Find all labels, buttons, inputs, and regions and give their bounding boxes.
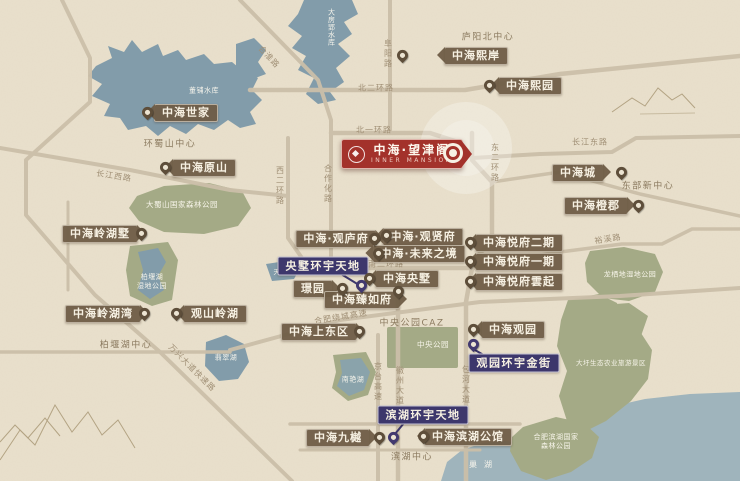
- poi-label[interactable]: 中海·观贤府: [382, 228, 463, 246]
- pin-shape: [168, 306, 184, 322]
- location-map: 中海世家中海原山中海熙岸中海熙园中海城中海橙郡中海悦府二期中海悦府一期中海悦府雲…: [0, 0, 740, 481]
- poi-label[interactable]: 中海九樾: [306, 429, 370, 447]
- road-label: 徽州大道: [395, 366, 406, 406]
- map-pin-icon[interactable]: [615, 166, 627, 181]
- pin-shape: [630, 198, 646, 214]
- map-pin-icon[interactable]: [392, 285, 404, 300]
- map-pin-icon[interactable]: [464, 275, 476, 290]
- poi-label[interactable]: 央墅环宇天地: [278, 257, 369, 276]
- district-label: 滨湖中心: [391, 450, 433, 463]
- map-pin-icon[interactable]: [159, 161, 171, 176]
- pin-shape: [385, 430, 401, 446]
- map-pin-icon[interactable]: [355, 279, 367, 294]
- pin-shape: [136, 306, 152, 322]
- pin-shape: [465, 337, 481, 353]
- pin-shape: [394, 48, 410, 64]
- pin-shape: [462, 235, 478, 251]
- poi-label[interactable]: 中海悦府二期: [475, 234, 563, 252]
- map-pin-icon[interactable]: [141, 106, 153, 121]
- map-pin-icon[interactable]: [336, 282, 348, 297]
- area-label: 董铺水库: [189, 86, 219, 95]
- area-label: 大蜀山国家森林公园: [146, 200, 218, 210]
- road-label: 西二环路: [275, 166, 286, 206]
- pin-shape: [481, 78, 497, 94]
- pin-shape: [351, 324, 367, 340]
- area-label: 翡翠湖: [215, 353, 238, 362]
- map-pin-icon[interactable]: [464, 236, 476, 251]
- pin-shape: [415, 429, 431, 445]
- poi-label[interactable]: 中海城: [552, 164, 604, 182]
- road-label: 阜阳路: [383, 39, 394, 69]
- poi-label[interactable]: 中海岭湖湾: [65, 305, 141, 323]
- poi-label[interactable]: 中海悦府雲起: [475, 273, 563, 291]
- pin-shape: [613, 165, 629, 181]
- brand-rosette-icon: [348, 146, 365, 163]
- map-pin-icon[interactable]: [372, 247, 384, 262]
- map-pin-icon[interactable]: [632, 199, 644, 214]
- main-project-subtitle: INNER MANSION: [371, 158, 453, 164]
- district-label: 柏堰湖中心: [100, 338, 153, 351]
- poi-label[interactable]: 中海观园: [481, 321, 545, 339]
- poi-label[interactable]: 中海熙园: [498, 77, 562, 95]
- poi-label[interactable]: 中海上东区: [281, 323, 357, 341]
- district-label: 东部新中心: [622, 179, 675, 192]
- main-project-target-icon[interactable]: [443, 143, 463, 163]
- map-pin-icon[interactable]: [467, 323, 479, 338]
- poi-label[interactable]: 中海滨湖公馆: [424, 428, 512, 446]
- map-pin-icon[interactable]: [417, 430, 429, 445]
- road-label: 长江东路: [572, 137, 608, 148]
- pin-shape: [334, 281, 350, 297]
- area-label: 大圩生态农业旅游景区: [576, 359, 646, 367]
- pin-shape: [139, 105, 155, 121]
- map-pin-icon[interactable]: [464, 255, 476, 270]
- district-label: 中央公园CAZ: [379, 316, 444, 329]
- poi-label[interactable]: 滨湖环宇天地: [378, 406, 469, 425]
- map-pin-icon[interactable]: [135, 227, 147, 242]
- area-label: 巢湖: [469, 460, 499, 470]
- pin-shape: [157, 160, 173, 176]
- map-pin-icon[interactable]: [483, 79, 495, 94]
- poi-label[interactable]: 观园环宇金街: [469, 354, 560, 373]
- pin-shape: [133, 226, 149, 242]
- poi-label[interactable]: 中海·未来之境: [372, 245, 465, 263]
- main-project-name: 中海·望津阁: [374, 144, 451, 156]
- map-pin-icon[interactable]: [138, 307, 150, 322]
- poi-label[interactable]: 中海岭湖墅: [62, 225, 138, 243]
- road-label: 合作化路: [323, 164, 334, 204]
- district-label: 环蜀山中心: [144, 137, 197, 150]
- poi-label[interactable]: 中海·观庐府: [295, 230, 376, 248]
- area-label: 龙栖地湿地公园: [604, 270, 657, 279]
- map-pin-icon[interactable]: [396, 49, 408, 64]
- area-label: 中央公园: [417, 340, 449, 350]
- map-pin-icon[interactable]: [387, 431, 399, 446]
- pin-shape: [370, 246, 386, 262]
- poi-label[interactable]: 中海悦府一期: [475, 253, 563, 271]
- map-pin-icon[interactable]: [170, 307, 182, 322]
- poi-label[interactable]: 中海原山: [172, 159, 236, 177]
- map-pin-icon[interactable]: [353, 325, 365, 340]
- map-pin-icon[interactable]: [467, 338, 479, 353]
- poi-label[interactable]: 中海世家: [154, 104, 218, 122]
- district-label: 庐阳北中心: [462, 30, 515, 43]
- pin-shape: [371, 430, 387, 446]
- area-label: 柏堰湖 湿地公园: [137, 273, 167, 291]
- road-label: 北二环路: [358, 83, 394, 94]
- road-label: 东二环路: [490, 143, 501, 183]
- pin-shape: [390, 284, 406, 300]
- poi-label[interactable]: 中海熙岸: [444, 47, 508, 65]
- pin-shape: [462, 254, 478, 270]
- pin-shape: [465, 322, 481, 338]
- road-label: 京台高速: [373, 362, 384, 402]
- map-pin-icon[interactable]: [373, 431, 385, 446]
- pin-shape: [378, 228, 394, 244]
- map-pin-icon[interactable]: [380, 229, 392, 244]
- area-label: 南艳湖: [342, 375, 365, 384]
- area-label: 大房郢水库: [326, 8, 335, 46]
- road-label: 北一环路: [356, 125, 392, 136]
- pin-shape: [353, 278, 369, 294]
- area-label: 合肥滨湖国家 森林公园: [534, 433, 579, 451]
- map-pin-icon[interactable]: [368, 232, 380, 247]
- poi-label[interactable]: 中海央墅: [375, 270, 439, 288]
- poi-label[interactable]: 观山岭湖: [183, 305, 247, 323]
- poi-label[interactable]: 中海橙郡: [564, 197, 628, 215]
- pin-shape: [462, 274, 478, 290]
